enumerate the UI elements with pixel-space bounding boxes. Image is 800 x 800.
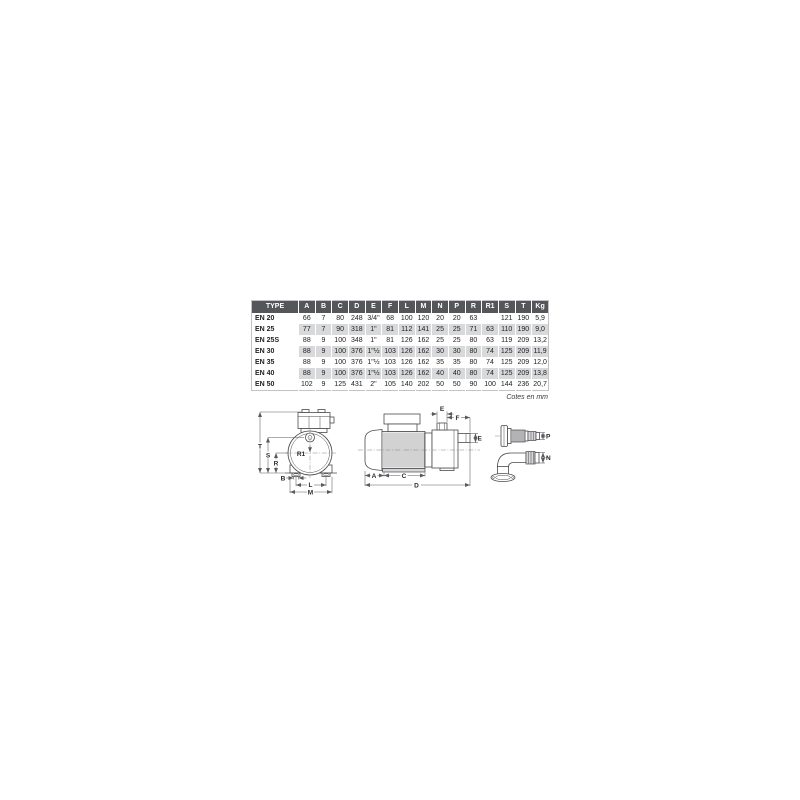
dimension-cell: 80	[465, 368, 482, 379]
dimension-cell: 121	[498, 313, 515, 324]
dimension-cell: 81	[382, 324, 399, 335]
dimension-cell: 35	[432, 357, 449, 368]
dim-label-b: B	[281, 476, 286, 483]
dimension-cell: 1"	[365, 335, 382, 346]
dimension-cell: 236	[515, 379, 532, 391]
dimensions-table-section: TYPE A B C D E F L M N P R R1 S T Kg	[251, 300, 549, 401]
dimension-cell: 9,0	[532, 324, 549, 335]
dimension-cell: 74	[482, 357, 499, 368]
dimension-cell: 80	[332, 313, 349, 324]
column-header-kg: Kg	[532, 301, 549, 314]
dimension-cell: 68	[382, 313, 399, 324]
dimension-cell: 5,9	[532, 313, 549, 324]
dimension-cell: 88	[299, 368, 316, 379]
dimension-cell: 20	[432, 313, 449, 324]
cable-gland	[330, 417, 334, 423]
page: TYPE A B C D E F L M N P R R1 S T Kg	[0, 0, 800, 800]
dim-label-r1: R1	[297, 451, 306, 458]
row-type-label: EN 20	[252, 313, 299, 324]
adapter-tip	[536, 433, 540, 440]
dimension-cell: 119	[498, 335, 515, 346]
dimension-cell: 74	[482, 346, 499, 357]
dimension-cell: 11,9	[532, 346, 549, 357]
dim-label-a: A	[372, 473, 377, 480]
dimension-cell: 88	[299, 346, 316, 357]
dimension-cell: 126	[398, 357, 415, 368]
dimension-cell: 9	[315, 368, 332, 379]
dimension-cell: 12,0	[532, 357, 549, 368]
dimension-cell: 209	[515, 335, 532, 346]
dimension-cell: 248	[348, 313, 365, 324]
dimension-cell: 110	[498, 324, 515, 335]
column-header-type: TYPE	[252, 301, 299, 314]
dimension-cell: 100	[398, 313, 415, 324]
dimension-cell: 25	[448, 324, 465, 335]
dimension-cell: 80	[465, 335, 482, 346]
column-header-p: P	[448, 301, 465, 314]
dimension-cell: 9	[315, 379, 332, 391]
dimension-cell: 9	[315, 357, 332, 368]
row-type-label: EN 25S	[252, 335, 299, 346]
dimension-cell: 141	[415, 324, 432, 335]
terminal-box-side	[384, 414, 420, 424]
dimension-cell: 112	[398, 324, 415, 335]
column-header-r1: R1	[482, 301, 499, 314]
column-header-a: A	[299, 301, 316, 314]
table-row: EN 25777903181"81112141252571631101909,0	[252, 324, 549, 335]
table-row: EN 308891003761"½10312616230308074125209…	[252, 346, 549, 357]
units-note: Cotes en mm	[251, 394, 549, 401]
table-row: EN 20667802483/4"681001202020631211905,9	[252, 313, 549, 324]
dim-label-m: M	[308, 489, 313, 496]
dimension-cell: 74	[482, 368, 499, 379]
dimension-cell: 162	[415, 335, 432, 346]
fittings-drawing: P N	[486, 420, 554, 486]
dimension-cell: 144	[498, 379, 515, 391]
dimension-cell: 81	[382, 335, 399, 346]
dimension-cell: 100	[332, 346, 349, 357]
dimension-cell: 190	[515, 324, 532, 335]
dim-label-p: P	[546, 434, 551, 441]
dimension-cell: 126	[398, 346, 415, 357]
dim-label-t: T	[258, 444, 262, 451]
dimension-cell: 100	[332, 368, 349, 379]
foot-tab-right	[322, 473, 330, 477]
dimension-cell: 100	[332, 335, 349, 346]
dimension-cell: 80	[465, 346, 482, 357]
dimension-cell: 126	[398, 335, 415, 346]
dimension-cell: 348	[348, 335, 365, 346]
dimension-cell: 7	[315, 324, 332, 335]
dimension-cell: 63	[465, 313, 482, 324]
column-header-l: L	[398, 301, 415, 314]
dimension-cell: 66	[299, 313, 316, 324]
dimension-cell	[482, 313, 499, 324]
dimension-cell: 88	[299, 357, 316, 368]
terminal-box-neck	[388, 424, 417, 432]
dimension-cell: 20,7	[532, 379, 549, 391]
column-header-m: M	[415, 301, 432, 314]
table-row: EN 5010291254312"10514020250509010014423…	[252, 379, 549, 391]
elbow-tip	[535, 453, 539, 464]
column-header-e: E	[365, 301, 382, 314]
dimension-cell: 431	[348, 379, 365, 391]
dimension-cell: 162	[415, 346, 432, 357]
dimension-cell: 125	[498, 357, 515, 368]
dimension-cell: 13,2	[532, 335, 549, 346]
dimension-cell: 100	[332, 357, 349, 368]
dimension-cell: 63	[482, 335, 499, 346]
dimension-cell: 40	[432, 368, 449, 379]
row-type-label: EN 30	[252, 346, 299, 357]
column-header-d: D	[348, 301, 365, 314]
dimension-cell: 2"	[365, 379, 382, 391]
elbow-body	[498, 453, 527, 467]
adapter-collar	[508, 429, 512, 444]
dimension-cell: 125	[332, 379, 349, 391]
dimension-cell: 25	[432, 335, 449, 346]
dimension-cell: 50	[432, 379, 449, 391]
terminal-box-screw	[318, 410, 325, 413]
dim-label-n: N	[546, 455, 551, 462]
dimension-cell: 1"½	[365, 368, 382, 379]
row-type-label: EN 35	[252, 357, 299, 368]
dim-label-d: D	[414, 482, 419, 489]
dimension-cell: 103	[382, 368, 399, 379]
column-header-s: S	[498, 301, 515, 314]
dimension-cell: 140	[398, 379, 415, 391]
dimension-cell: 90	[332, 324, 349, 335]
dimension-cell: 35	[448, 357, 465, 368]
table-row: EN 25S8891003481"81126162252580631192091…	[252, 335, 549, 346]
dimension-cell: 30	[448, 346, 465, 357]
adapter-barb	[528, 432, 536, 441]
dimension-cell: 80	[465, 357, 482, 368]
suction-port	[437, 423, 447, 430]
column-header-b: B	[315, 301, 332, 314]
dimension-cell: 1"½	[365, 346, 382, 357]
terminal-box	[298, 413, 330, 429]
dim-label-c: C	[402, 473, 407, 480]
dimension-cell: 50	[448, 379, 465, 391]
table-header: TYPE A B C D E F L M N P R R1 S T Kg	[252, 301, 549, 314]
dimension-cell: 209	[515, 346, 532, 357]
header-row: TYPE A B C D E F L M N P R R1 S T Kg	[252, 301, 549, 314]
column-header-c: C	[332, 301, 349, 314]
dimension-cell: 30	[432, 346, 449, 357]
dimension-cell: 1"½	[365, 357, 382, 368]
dimension-cell: 120	[415, 313, 432, 324]
dim-label-f: F	[456, 415, 460, 422]
dimension-cell: 126	[398, 368, 415, 379]
dim-label-l: L	[309, 482, 313, 489]
motor-base	[383, 469, 426, 473]
column-header-r: R	[465, 301, 482, 314]
dimension-cell: 209	[515, 368, 532, 379]
terminal-box-screw	[302, 410, 309, 413]
dimension-cell: 103	[382, 357, 399, 368]
dimension-cell: 209	[515, 357, 532, 368]
dimension-cell: 63	[482, 324, 499, 335]
row-type-label: EN 50	[252, 379, 299, 391]
dimension-cell: 88	[299, 335, 316, 346]
dim-label-r: R	[274, 461, 279, 468]
dimension-cell: 105	[382, 379, 399, 391]
dimension-cell: 40	[448, 368, 465, 379]
dim-label-e-top: E	[440, 406, 445, 413]
dimensions-table: TYPE A B C D E F L M N P R R1 S T Kg	[251, 300, 549, 391]
dim-label-s: S	[266, 453, 271, 460]
dimension-cell: 3/4"	[365, 313, 382, 324]
table-row: EN 408891003761"½10312616240408074125209…	[252, 368, 549, 379]
row-type-label: EN 25	[252, 324, 299, 335]
column-header-n: N	[432, 301, 449, 314]
adapter-step	[525, 431, 528, 441]
dimension-cell: 318	[348, 324, 365, 335]
dimension-cell: 103	[382, 346, 399, 357]
pump-side-view-drawing: E F E A C D	[354, 404, 484, 496]
dimension-cell: 162	[415, 357, 432, 368]
row-type-label: EN 40	[252, 368, 299, 379]
column-header-t: T	[515, 301, 532, 314]
dimension-cell: 102	[299, 379, 316, 391]
dimension-cell: 20	[448, 313, 465, 324]
dimension-cell: 162	[415, 368, 432, 379]
dimension-cell: 13,8	[532, 368, 549, 379]
dimension-cell: 376	[348, 357, 365, 368]
dimension-cell: 9	[315, 335, 332, 346]
dimension-cell: 9	[315, 346, 332, 357]
dimension-cell: 25	[432, 324, 449, 335]
dimension-cell: 100	[482, 379, 499, 391]
pump-front-view-drawing: R1 T S R B L M	[252, 406, 348, 516]
dimension-cell: 25	[448, 335, 465, 346]
dimension-cell: 376	[348, 346, 365, 357]
dim-label-e-right: E	[478, 436, 483, 443]
dimension-cell: 1"	[365, 324, 382, 335]
dimension-cell: 125	[498, 346, 515, 357]
dimension-cell: 376	[348, 368, 365, 379]
table-row: EN 358891003761"½10312616235358074125209…	[252, 357, 549, 368]
table-body: EN 20667802483/4"681001202020631211905,9…	[252, 313, 549, 391]
dimension-cell: 90	[465, 379, 482, 391]
dimension-cell: 202	[415, 379, 432, 391]
dimension-cell: 7	[315, 313, 332, 324]
dimension-cell: 125	[498, 368, 515, 379]
dimension-cell: 71	[465, 324, 482, 335]
column-header-f: F	[382, 301, 399, 314]
dimension-cell: 77	[299, 324, 316, 335]
foot-tab-left	[292, 473, 300, 477]
dimension-cell: 190	[515, 313, 532, 324]
discharge-port	[458, 434, 470, 443]
